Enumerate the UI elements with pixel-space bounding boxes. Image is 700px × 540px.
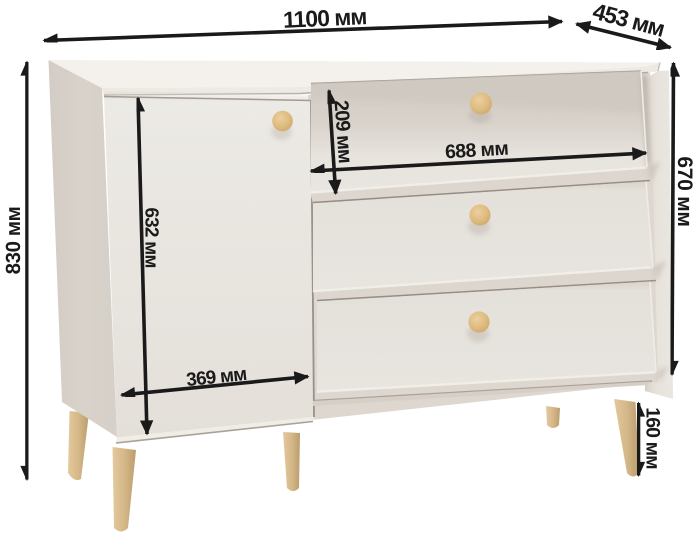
svg-text:160 мм: 160 мм: [641, 407, 663, 469]
svg-text:830 мм: 830 мм: [2, 207, 25, 275]
svg-text:632 мм: 632 мм: [140, 207, 161, 267]
svg-text:1100 мм: 1100 мм: [282, 3, 366, 33]
svg-text:209 мм: 209 мм: [330, 100, 356, 164]
svg-text:670 мм: 670 мм: [673, 156, 696, 226]
svg-text:688 мм: 688 мм: [444, 138, 509, 164]
